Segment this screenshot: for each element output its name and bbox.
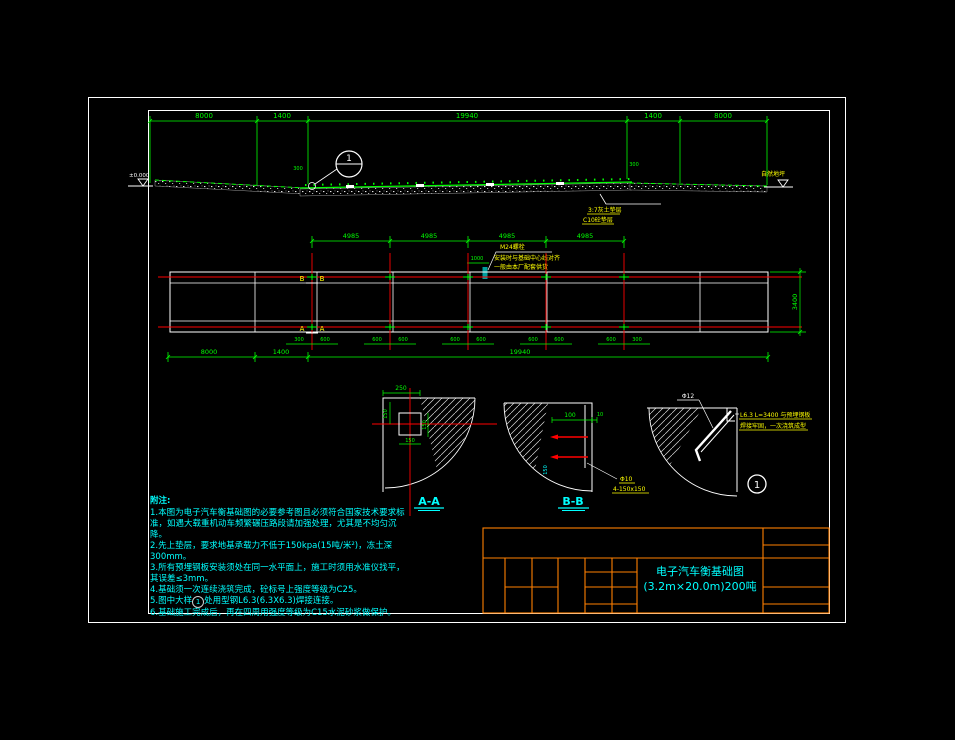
overview-dim-1400-left: 1400: [273, 112, 291, 120]
overview-section-view: 8000 1400 19940 1400 8000 300 300 ±0.000…: [128, 112, 793, 224]
plan-height-3400: 3400: [791, 294, 799, 311]
foundation-outline: [170, 272, 768, 332]
bb-rebar-label2: 4-150x150: [613, 486, 646, 493]
drawing-title-line2: (3.2m×20.0m)200吨: [637, 579, 763, 594]
bolt-note-line2: 安装时与基础中心线对齐: [494, 254, 560, 262]
note-item-5: 5.图中大样1处用型钢L6.3(6.3X6.3)焊接连接。: [150, 596, 408, 608]
right-ramp-fill-band: [630, 183, 767, 192]
rebar-bars: [550, 435, 588, 460]
aa-dim-150-left: 150: [383, 409, 389, 419]
detail-1: Φ12 L6.3 L=3400 与预埋钢板 焊接牢固，一次浇筑成型 1: [647, 393, 812, 496]
svg-text:600: 600: [528, 337, 538, 343]
section-marker-b-left: B: [300, 275, 305, 283]
bb-rebar-label1: Φ10: [620, 476, 633, 483]
overview-dim-300-left: 300: [293, 166, 303, 172]
svg-text:600: 600: [372, 337, 382, 343]
plan-dim-seg2: 4985: [421, 232, 438, 240]
bb-dim-10: 10: [597, 412, 603, 418]
svg-text:600: 600: [606, 337, 616, 343]
section-marker-b-right: B: [320, 275, 325, 283]
section-bb-label: B-B: [562, 495, 583, 508]
aa-dim-150-right: 150: [422, 420, 428, 430]
svg-text:300: 300: [632, 337, 642, 343]
plan-bottom-8000: 8000: [201, 348, 218, 356]
plan-dim-seg4: 4985: [577, 232, 594, 240]
note-item-6: 6.基础施工完成后，再在四周用强度等级为C15水泥砂浆做保护。: [150, 608, 408, 619]
layer2-label: C10砼垫层: [583, 216, 613, 224]
layer-leader-line: [600, 194, 661, 204]
elevation-label-left: ±0.000: [129, 173, 150, 179]
aa-dim-250: 250: [395, 385, 407, 392]
callout-number: 1: [346, 154, 352, 164]
note-5-prefix: 5.图中大样: [150, 596, 192, 606]
svg-text:600: 600: [398, 337, 408, 343]
svg-text:300: 300: [294, 337, 304, 343]
detail-callout-bubble: 1: [309, 151, 363, 190]
title-block-text: 电子汽车衡基础图 (3.2m×20.0m)200吨: [637, 564, 763, 594]
note-item-4: 4.基础须一次连续浇筑完成，砼标号上强度等级为C25。: [150, 585, 408, 596]
overview-dim-19940: 19940: [456, 112, 478, 120]
svg-text:600: 600: [476, 337, 486, 343]
bolt-note-line1: M24螺栓: [500, 243, 525, 251]
cad-viewport: 8000 1400 19940 1400 8000 300 300 ±0.000…: [0, 0, 955, 740]
d1-note-line1: L6.3 L=3400 与预埋钢板: [740, 411, 810, 419]
note-5-suffix: 处用型钢L6.3(6.3X6.3)焊接连接。: [204, 596, 338, 606]
aa-dim-150-bottom: 150: [405, 438, 415, 444]
overview-dim-8000-right: 8000: [714, 112, 732, 120]
note-item-1: 1.本图为电子汽车衡基础图的必要参考图且必须符合国家技术要求标准，如遇大载重机动…: [150, 508, 408, 541]
level-symbol-left: [138, 179, 148, 186]
svg-text:600: 600: [320, 337, 330, 343]
angle-steel: [696, 411, 734, 461]
bolt-note-line3: 一般由本厂配套供货: [494, 263, 548, 271]
d1-number: 1: [754, 480, 760, 491]
overview-dim-300-right: 300: [629, 162, 639, 168]
cad-canvas: 8000 1400 19940 1400 8000 300 300 ±0.000…: [0, 0, 955, 740]
plan-view: 4985 4985 4985 4985 1000 M24螺栓 安装时与基础中心线…: [158, 232, 806, 362]
section-aa-label: A-A: [418, 495, 440, 508]
dim-1000-label: 1000: [471, 256, 484, 262]
note-5-detail-circle: 1: [192, 596, 204, 608]
d1-rebar-label: Φ12: [682, 393, 695, 400]
svg-text:600: 600: [554, 337, 564, 343]
plan-dim-seg1: 4985: [343, 232, 360, 240]
bb-dim-100: 100: [564, 412, 576, 419]
d1-note-line2: 焊接牢固，一次浇筑成型: [740, 422, 806, 430]
svg-text:600: 600: [450, 337, 460, 343]
layer1-label: 3:7灰土垫层: [588, 206, 622, 214]
plan-dim-seg3: 4985: [499, 232, 516, 240]
overview-dim-8000-left: 8000: [195, 112, 213, 120]
plan-bottom-1400: 1400: [273, 348, 290, 356]
notes-title: 附注:: [150, 496, 408, 507]
plan-bottom-19940: 19940: [510, 348, 531, 356]
drawing-title-line1: 电子汽车衡基础图: [637, 564, 763, 579]
note-item-2: 2.先上垫层，要求地基承载力不低于150kpa(15吨/米²)，冻土深300mm…: [150, 541, 408, 563]
overview-dim-1400-right: 1400: [644, 112, 662, 120]
section-marker-a-right: A: [320, 325, 325, 333]
notes-block: 附注: 1.本图为电子汽车衡基础图的必要参考图且必须符合国家技术要求标准，如遇大…: [150, 496, 408, 619]
natural-ground-label: 自然地坪: [761, 170, 785, 178]
section-marker-a-left: A: [300, 325, 305, 333]
bb-dim-150: 150: [543, 465, 549, 475]
note-item-3: 3.所有预埋钢板安装须处在同一水平面上，施工时须用水准仪找平，其误差≤3mm。: [150, 563, 408, 585]
level-symbol-right: [778, 180, 788, 187]
section-bb: 100 10 150 Φ10 4-150x150 B-B: [504, 403, 649, 511]
